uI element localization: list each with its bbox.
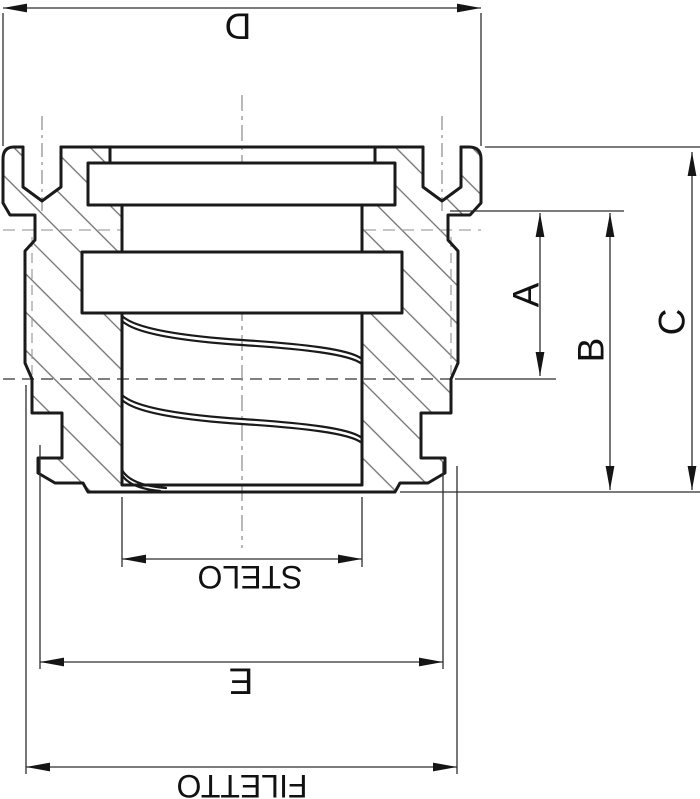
dim-label-a: A (506, 282, 547, 307)
gland-flange-upper (88, 163, 395, 205)
dim-label-c: C (652, 309, 693, 336)
dim-label-b: B (571, 338, 612, 363)
gland-neck (122, 205, 362, 252)
drawing-page: D A B C STELO E FILETTO (0, 0, 700, 799)
gland-flange-lower (82, 252, 402, 313)
dim-label-filetto: FILETTO (177, 768, 308, 799)
technical-drawing: D A B C STELO E FILETTO (0, 0, 700, 799)
dim-label-d: D (225, 6, 252, 47)
dim-label-stelo: STELO (198, 559, 303, 595)
dim-label-e: E (229, 661, 254, 702)
